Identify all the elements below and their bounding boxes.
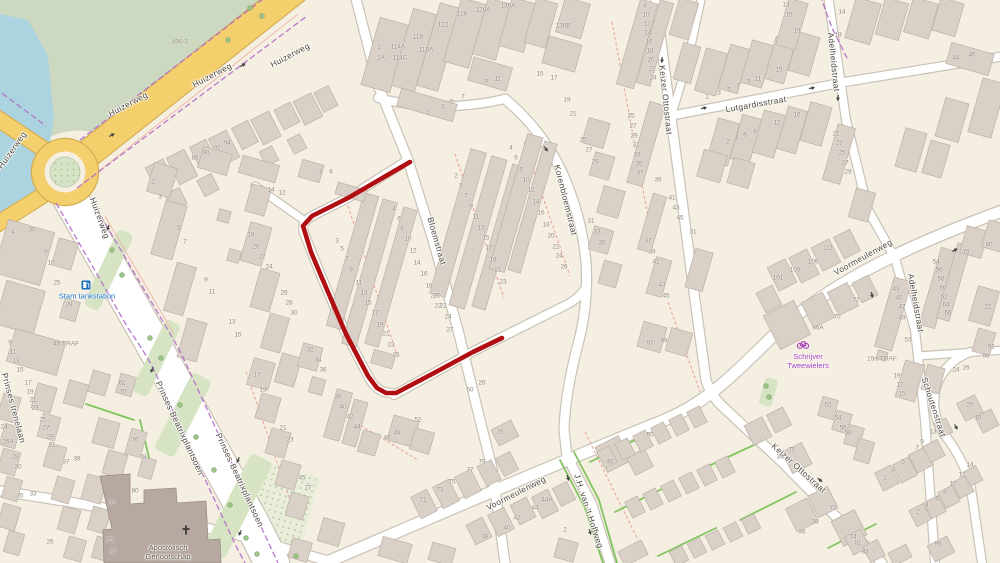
tree-icon — [767, 395, 772, 400]
tree-icon — [110, 248, 115, 253]
tree-icon — [294, 554, 299, 559]
tree-icon — [178, 403, 183, 408]
map-canvas[interactable]: HuizerwegHuizerwegHuizerwegHuizerwegHuiz… — [0, 0, 1000, 563]
roundabout — [31, 138, 99, 206]
tree-icon — [226, 38, 231, 43]
tree-icon — [248, 6, 253, 11]
tree-icon — [120, 273, 125, 278]
tree-icon — [260, 14, 265, 19]
tree-icon — [212, 468, 217, 473]
tree-icon — [148, 336, 153, 341]
tree-icon — [228, 503, 233, 508]
roundabout-green-dots — [50, 157, 80, 187]
tree-icon — [159, 356, 164, 361]
tree-icon — [255, 552, 260, 557]
tree-icon — [764, 384, 769, 389]
fuel-icon — [82, 281, 91, 290]
map-graphics — [0, 0, 1000, 563]
tree-icon — [244, 536, 249, 541]
tree-icon — [194, 435, 199, 440]
